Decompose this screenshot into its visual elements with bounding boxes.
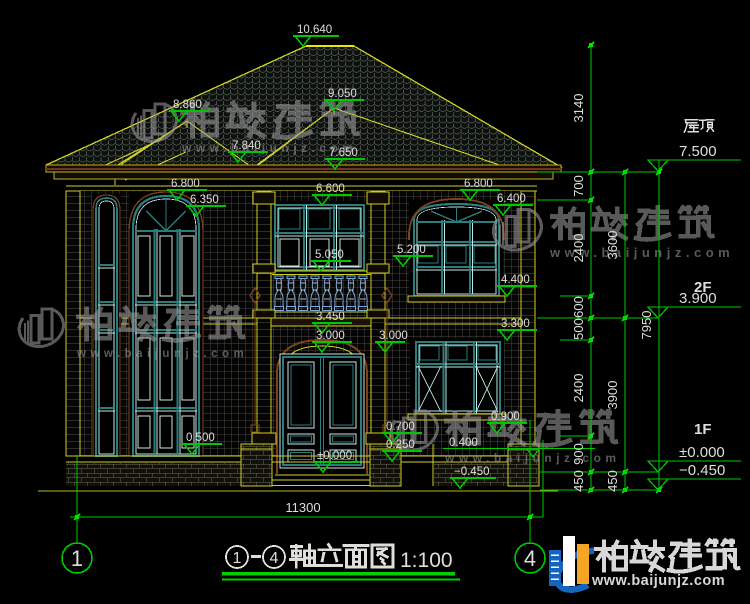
svg-text:1: 1 [233,550,242,567]
svg-text:7.500: 7.500 [679,143,717,160]
svg-text:8.860: 8.860 [173,99,202,111]
svg-text:700: 700 [571,175,586,197]
svg-text:1:100: 1:100 [400,549,453,572]
svg-text:0.700: 0.700 [386,421,415,433]
svg-text:6.600: 6.600 [316,183,345,195]
svg-text:7.840: 7.840 [232,140,261,152]
svg-text:6.350: 6.350 [190,194,219,206]
svg-text:2400: 2400 [571,234,586,263]
svg-text:11300: 11300 [285,500,320,515]
svg-text:±0.000: ±0.000 [679,444,725,461]
svg-text:−0.450: −0.450 [679,462,725,479]
svg-text:7950: 7950 [639,311,654,340]
svg-text:450: 450 [605,470,620,492]
svg-text:3.000: 3.000 [379,330,408,342]
svg-text:3.900: 3.900 [679,290,717,307]
svg-text:3140: 3140 [571,94,586,123]
svg-text:5.200: 5.200 [397,244,426,256]
svg-text:1F: 1F [694,421,712,438]
svg-text:www.baijunjz.com: www.baijunjz.com [591,573,725,589]
svg-text:3.450: 3.450 [316,311,345,323]
svg-text:−0.450: −0.450 [454,466,490,478]
svg-text:4: 4 [270,550,279,567]
svg-text:±0.000: ±0.000 [317,450,352,462]
svg-text:600: 600 [571,296,586,318]
svg-text:0.900: 0.900 [491,411,520,423]
svg-text:450: 450 [571,470,586,492]
svg-text:7.650: 7.650 [329,147,358,159]
svg-text:0.400: 0.400 [449,437,478,449]
svg-text:4: 4 [524,546,536,571]
svg-text:3.300: 3.300 [501,318,530,330]
svg-text:2400: 2400 [571,374,586,403]
svg-text:4.400: 4.400 [501,274,530,286]
svg-text:3900: 3900 [605,381,620,410]
svg-text:www.baijunjz.com: www.baijunjz.com [444,451,621,465]
svg-text:6.800: 6.800 [171,178,200,190]
svg-text:www.baijunjz.com: www.baijunjz.com [76,348,248,360]
svg-text:6.400: 6.400 [497,193,526,205]
svg-text:900: 900 [571,443,586,465]
svg-text:1: 1 [71,546,83,571]
svg-text:9.050: 9.050 [328,88,357,100]
svg-text:3600: 3600 [605,231,620,260]
svg-text:10.640: 10.640 [297,24,332,36]
svg-text:5.050: 5.050 [315,249,344,261]
svg-text:0.250: 0.250 [386,439,415,451]
svg-text:6.800: 6.800 [464,178,493,190]
svg-text:500: 500 [571,318,586,340]
svg-text:3.000: 3.000 [316,330,345,342]
svg-text:0.500: 0.500 [186,432,215,444]
